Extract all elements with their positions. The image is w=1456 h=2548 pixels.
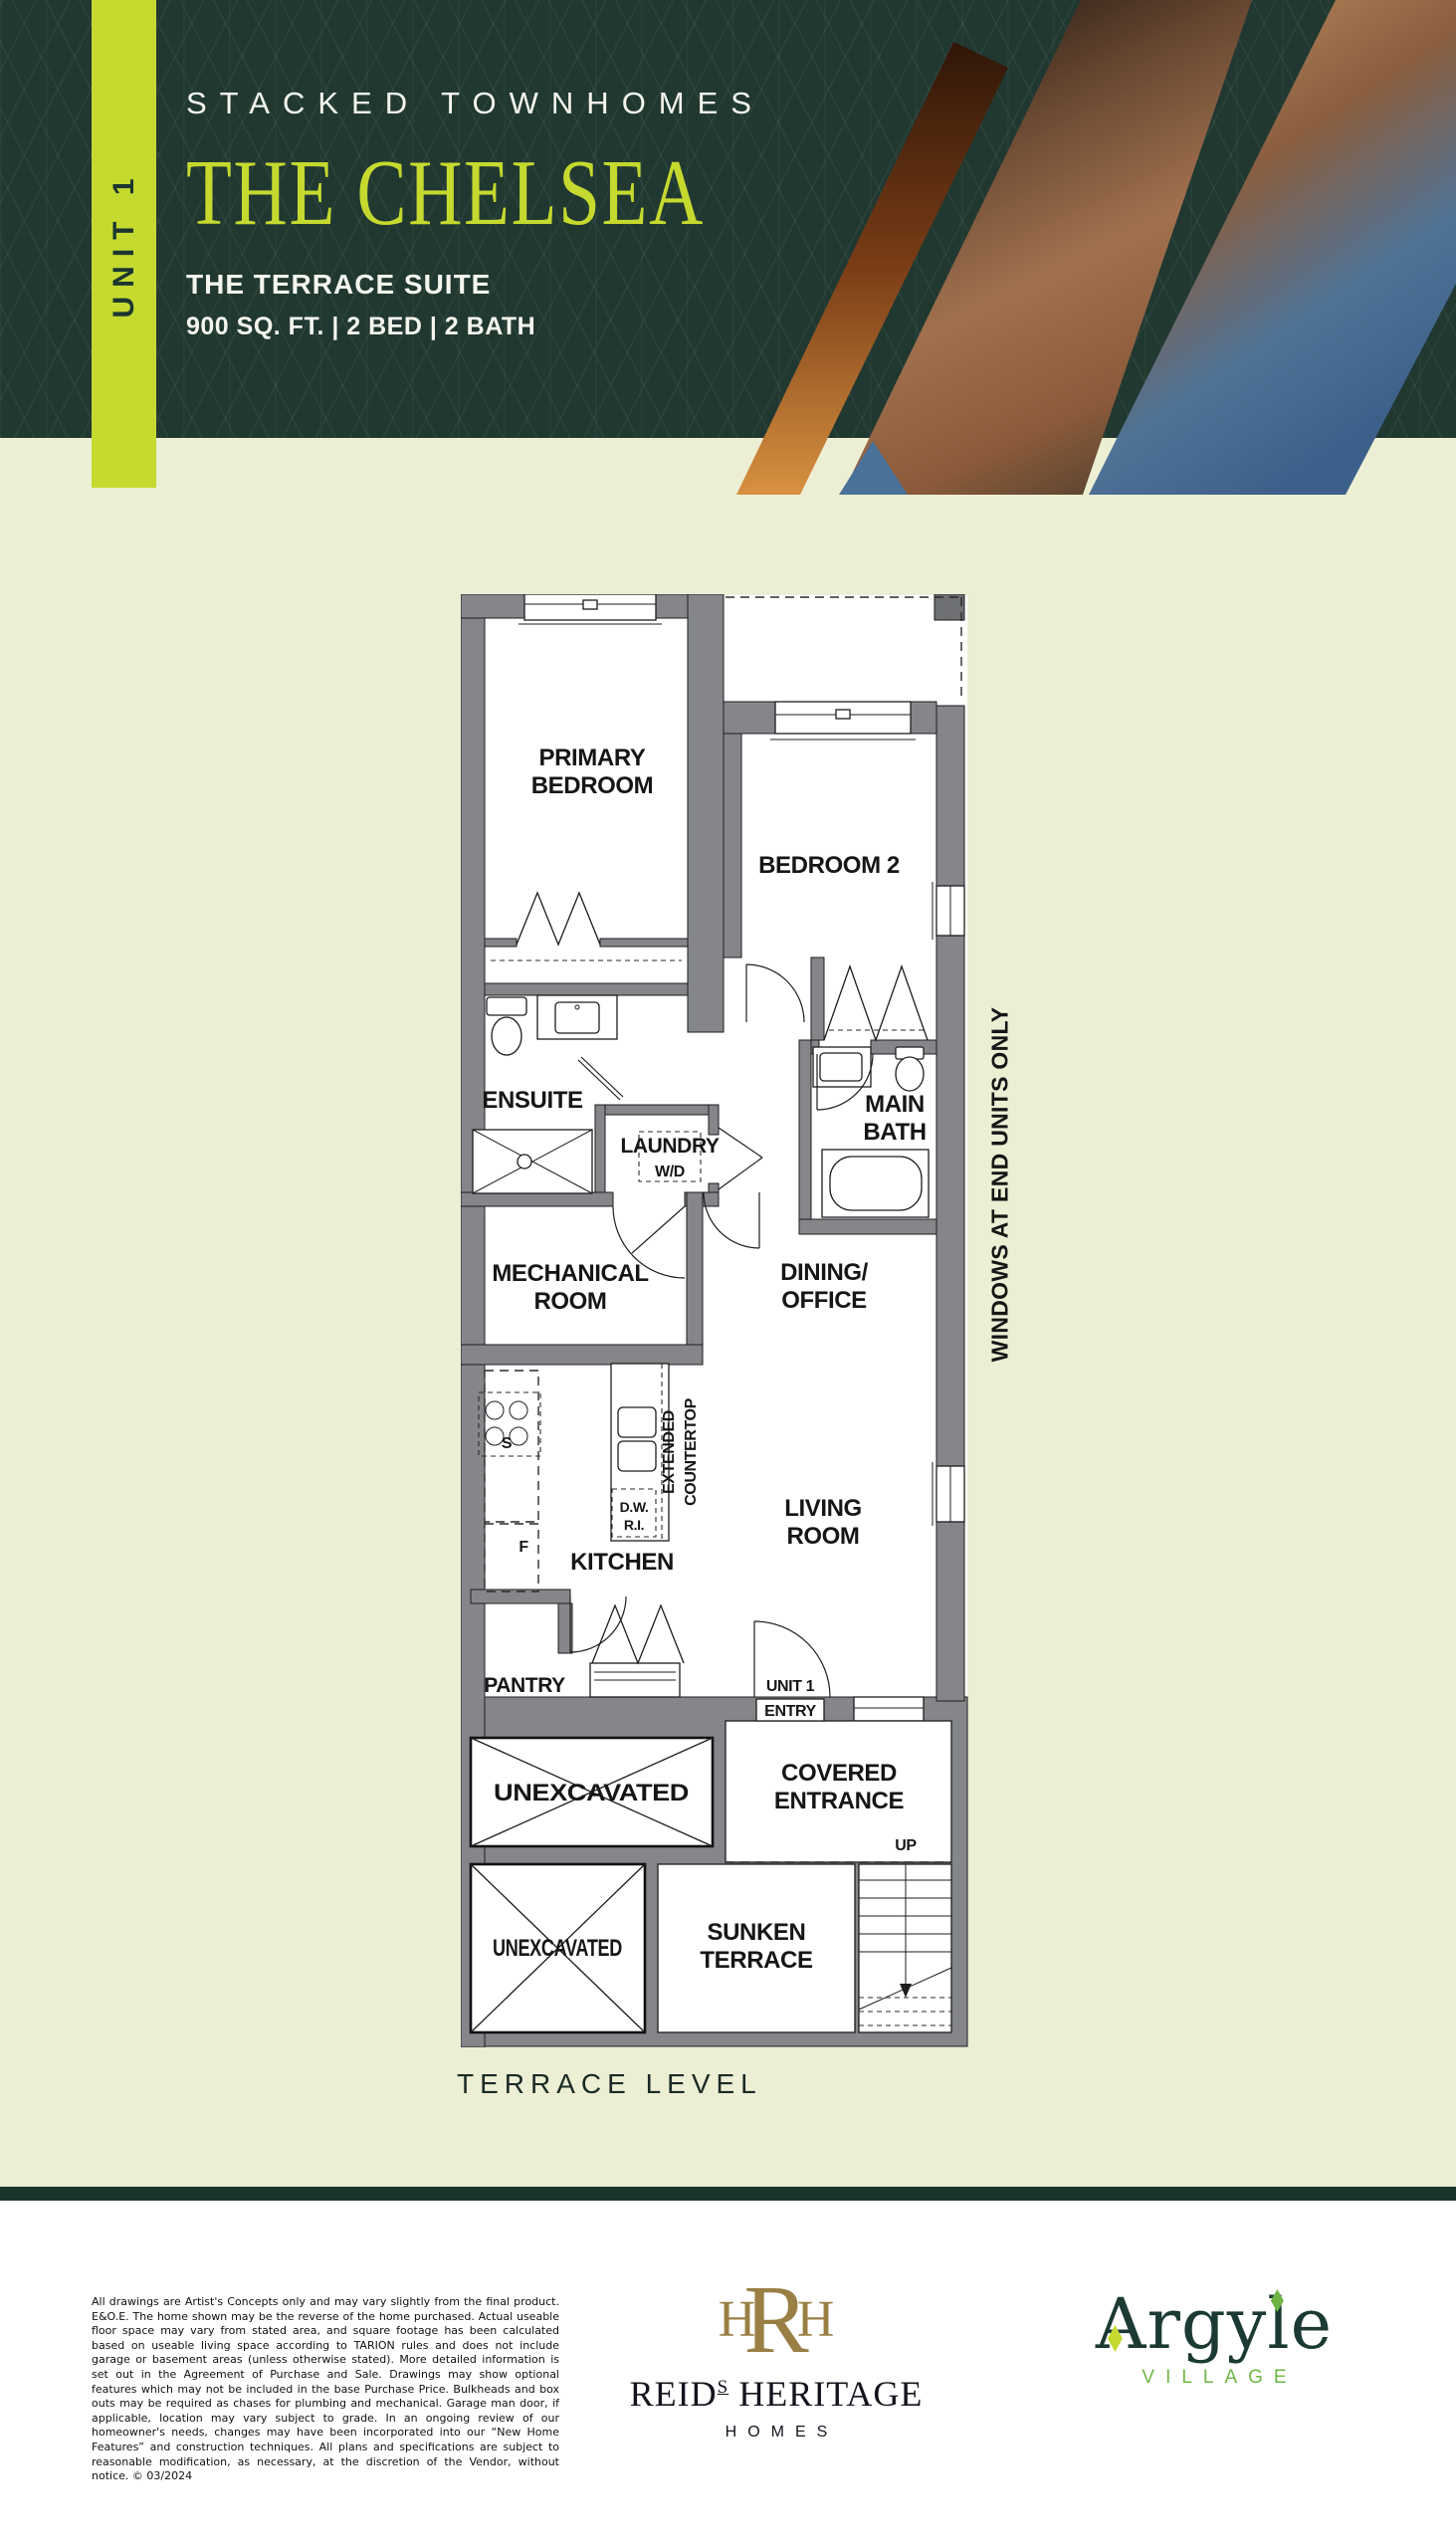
monogram-r: R bbox=[743, 2271, 808, 2369]
label-primary-bedroom-2: BEDROOM bbox=[531, 772, 654, 799]
window-primary-bedroom bbox=[519, 594, 662, 624]
corner-pier bbox=[935, 594, 964, 620]
floorplan-flyer: STACKED TOWNHOMES THE CHELSEA THE TERRAC… bbox=[0, 0, 1456, 2548]
level-label: TERRACE LEVEL bbox=[457, 2068, 762, 2100]
community-logo: Argyle VILLAGE bbox=[1050, 2289, 1378, 2389]
window-covered-entrance bbox=[854, 1697, 924, 1721]
window-bedroom2 bbox=[770, 702, 916, 740]
label-washer-dryer: W/D bbox=[655, 1164, 685, 1180]
label-primary-bedroom: PRIMARY bbox=[539, 744, 646, 771]
title-block: STACKED TOWNHOMES THE CHELSEA THE TERRAC… bbox=[186, 86, 834, 341]
label-dining: DINING/ bbox=[780, 1259, 869, 1286]
label-up: UP bbox=[895, 1837, 917, 1854]
label-unexcavated-2: UNEXCAVATED bbox=[493, 1935, 622, 1962]
ensuite-shower bbox=[473, 1130, 592, 1193]
builder-name-heritage: HERITAGE bbox=[738, 2374, 923, 2414]
community-subtitle: VILLAGE bbox=[1050, 2367, 1378, 2389]
label-main-bath: MAIN bbox=[865, 1091, 925, 1118]
label-stove: S bbox=[502, 1435, 513, 1452]
community-wordmark: Argyle bbox=[1096, 2289, 1333, 2359]
label-extended-countertop: EXTENDED bbox=[661, 1410, 678, 1494]
model-name: THE CHELSEA bbox=[186, 139, 705, 247]
builder-logo: H R H REIDSHERITAGE HOMES bbox=[612, 2271, 940, 2442]
legal-disclaimer: All drawings are Artist's Concepts only … bbox=[92, 2295, 559, 2484]
label-living: LIVING bbox=[784, 1495, 862, 1522]
label-laundry: LAUNDRY bbox=[620, 1135, 719, 1158]
community-name: Argyle bbox=[1096, 2283, 1333, 2365]
builder-name-reid: REID bbox=[630, 2374, 718, 2414]
builder-name-sup: S bbox=[718, 2377, 729, 2398]
label-dishwasher: D.W. bbox=[620, 1499, 649, 1515]
stairs bbox=[859, 1864, 951, 2032]
unit-ribbon: UNIT 1 bbox=[92, 0, 156, 488]
builder-subtitle: HOMES bbox=[612, 2424, 940, 2442]
label-kitchen: KITCHEN bbox=[570, 1549, 674, 1576]
mainbath-tub bbox=[822, 1150, 929, 1217]
label-unit-entry: UNIT 1 bbox=[766, 1678, 815, 1695]
specs-line: 900 SQ. FT. | 2 BED | 2 BATH bbox=[186, 313, 834, 341]
window-side-living bbox=[933, 1462, 964, 1526]
label-mechanical: MECHANICAL bbox=[492, 1260, 648, 1287]
divider-bar bbox=[0, 2187, 1456, 2201]
label-covered-2: ENTRANCE bbox=[774, 1788, 905, 1814]
builder-name: REIDSHERITAGE bbox=[612, 2373, 940, 2415]
label-fridge: F bbox=[519, 1539, 528, 1556]
label-pantry: PANTRY bbox=[484, 1674, 565, 1697]
collection-title: STACKED TOWNHOMES bbox=[186, 86, 834, 121]
label-sunken-2: TERRACE bbox=[700, 1947, 813, 1974]
label-living-2: ROOM bbox=[786, 1523, 859, 1550]
label-extended-countertop-2: COUNTERTOP bbox=[683, 1397, 700, 1505]
label-dining-2: OFFICE bbox=[781, 1287, 867, 1314]
label-ensuite: ENSUITE bbox=[482, 1087, 583, 1114]
unit-ribbon-label: UNIT 1 bbox=[107, 169, 141, 318]
window-side-bedroom2 bbox=[933, 882, 964, 940]
mainbath-vanity-sink bbox=[813, 1047, 871, 1087]
label-mechanical-2: ROOM bbox=[533, 1288, 606, 1315]
photo-collage bbox=[728, 0, 1456, 498]
label-unit-entry-2: ENTRY bbox=[764, 1703, 816, 1720]
builder-monogram-icon: H R H bbox=[612, 2271, 940, 2369]
suite-name: THE TERRACE SUITE bbox=[186, 269, 834, 301]
label-main-bath-2: BATH bbox=[863, 1119, 926, 1146]
label-rough-in: R.I. bbox=[624, 1517, 644, 1533]
label-sunken: SUNKEN bbox=[708, 1919, 806, 1946]
ensuite-vanity-sink bbox=[537, 995, 617, 1039]
windows-note: WINDOWS AT END UNITS ONLY bbox=[987, 1007, 1014, 1363]
label-covered: COVERED bbox=[781, 1760, 897, 1787]
floor-plan: PRIMARY BEDROOM BEDROOM 2 ENSUITE LAUNDR… bbox=[461, 594, 968, 2047]
mainbath-toilet bbox=[896, 1047, 924, 1091]
label-bedroom2: BEDROOM 2 bbox=[758, 852, 900, 879]
label-unexcavated-1: UNEXCAVATED bbox=[494, 1780, 689, 1806]
